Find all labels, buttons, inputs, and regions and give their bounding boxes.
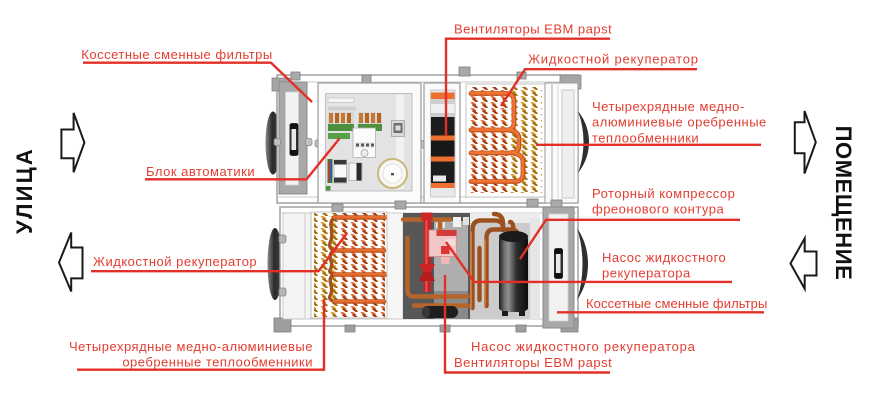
svg-text:ПОМЕЩЕНИЕ: ПОМЕЩЕНИЕ [831, 126, 856, 281]
svg-text:фреонового контура: фреонового контура [592, 202, 725, 217]
svg-text:Четырехрядные медно-алюминиевы: Четырехрядные медно-алюминиевые [69, 339, 313, 354]
svg-text:Вентиляторы EBM papst: Вентиляторы EBM papst [454, 22, 612, 37]
svg-text:Насос жидкостного рекуператора: Насос жидкостного рекуператора [471, 339, 696, 354]
svg-text:алюминиевые оребренные: алюминиевые оребренные [592, 115, 767, 130]
svg-text:Коссетные сменные фильтры: Коссетные сменные фильтры [586, 296, 767, 311]
svg-text:теплообменники: теплообменники [592, 130, 699, 145]
svg-text:Жидкостной рекуператор: Жидкостной рекуператор [528, 52, 699, 67]
svg-text:Роторный компрессор: Роторный компрессор [592, 186, 735, 201]
svg-text:Вентиляторы EBM papst: Вентиляторы EBM papst [454, 355, 612, 370]
svg-text:оребренные теплообменники: оребренные теплообменники [122, 354, 313, 369]
svg-text:Коссетные сменные фильтры: Коссетные сменные фильтры [81, 47, 272, 62]
svg-text:рекуператора: рекуператора [602, 266, 691, 281]
svg-text:Жидкостной рекуператор: Жидкостной рекуператор [93, 254, 257, 269]
svg-text:УЛИЦА: УЛИЦА [12, 147, 37, 234]
svg-text:Четырехрядные медно-: Четырехрядные медно- [592, 99, 745, 114]
svg-text:Блок автоматики: Блок автоматики [146, 164, 255, 179]
svg-text:Насос жидкостного: Насос жидкостного [602, 250, 726, 265]
